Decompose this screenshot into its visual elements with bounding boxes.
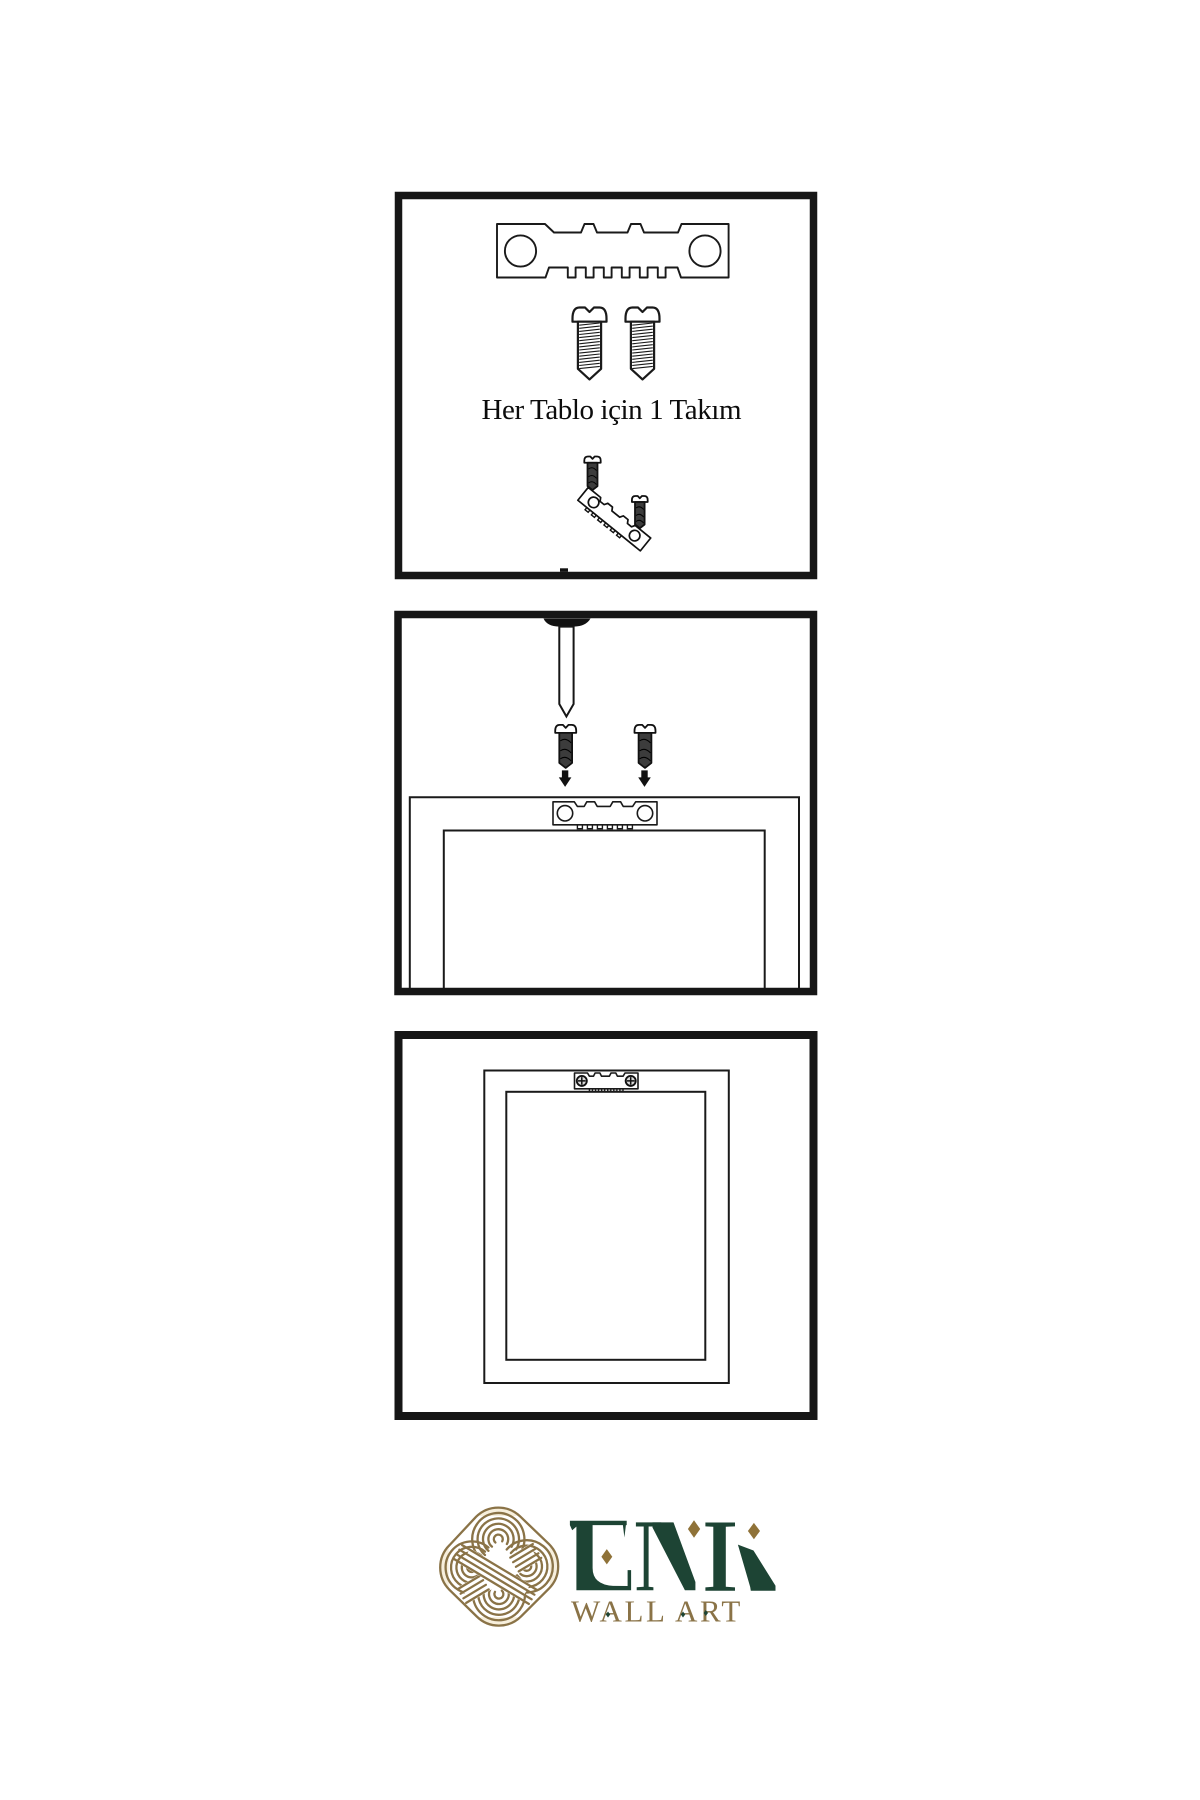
svg-text:Her Tablo için 1 Takım: Her Tablo için 1 Takım — [482, 394, 742, 426]
svg-text:WALL ART: WALL ART — [571, 1594, 743, 1629]
